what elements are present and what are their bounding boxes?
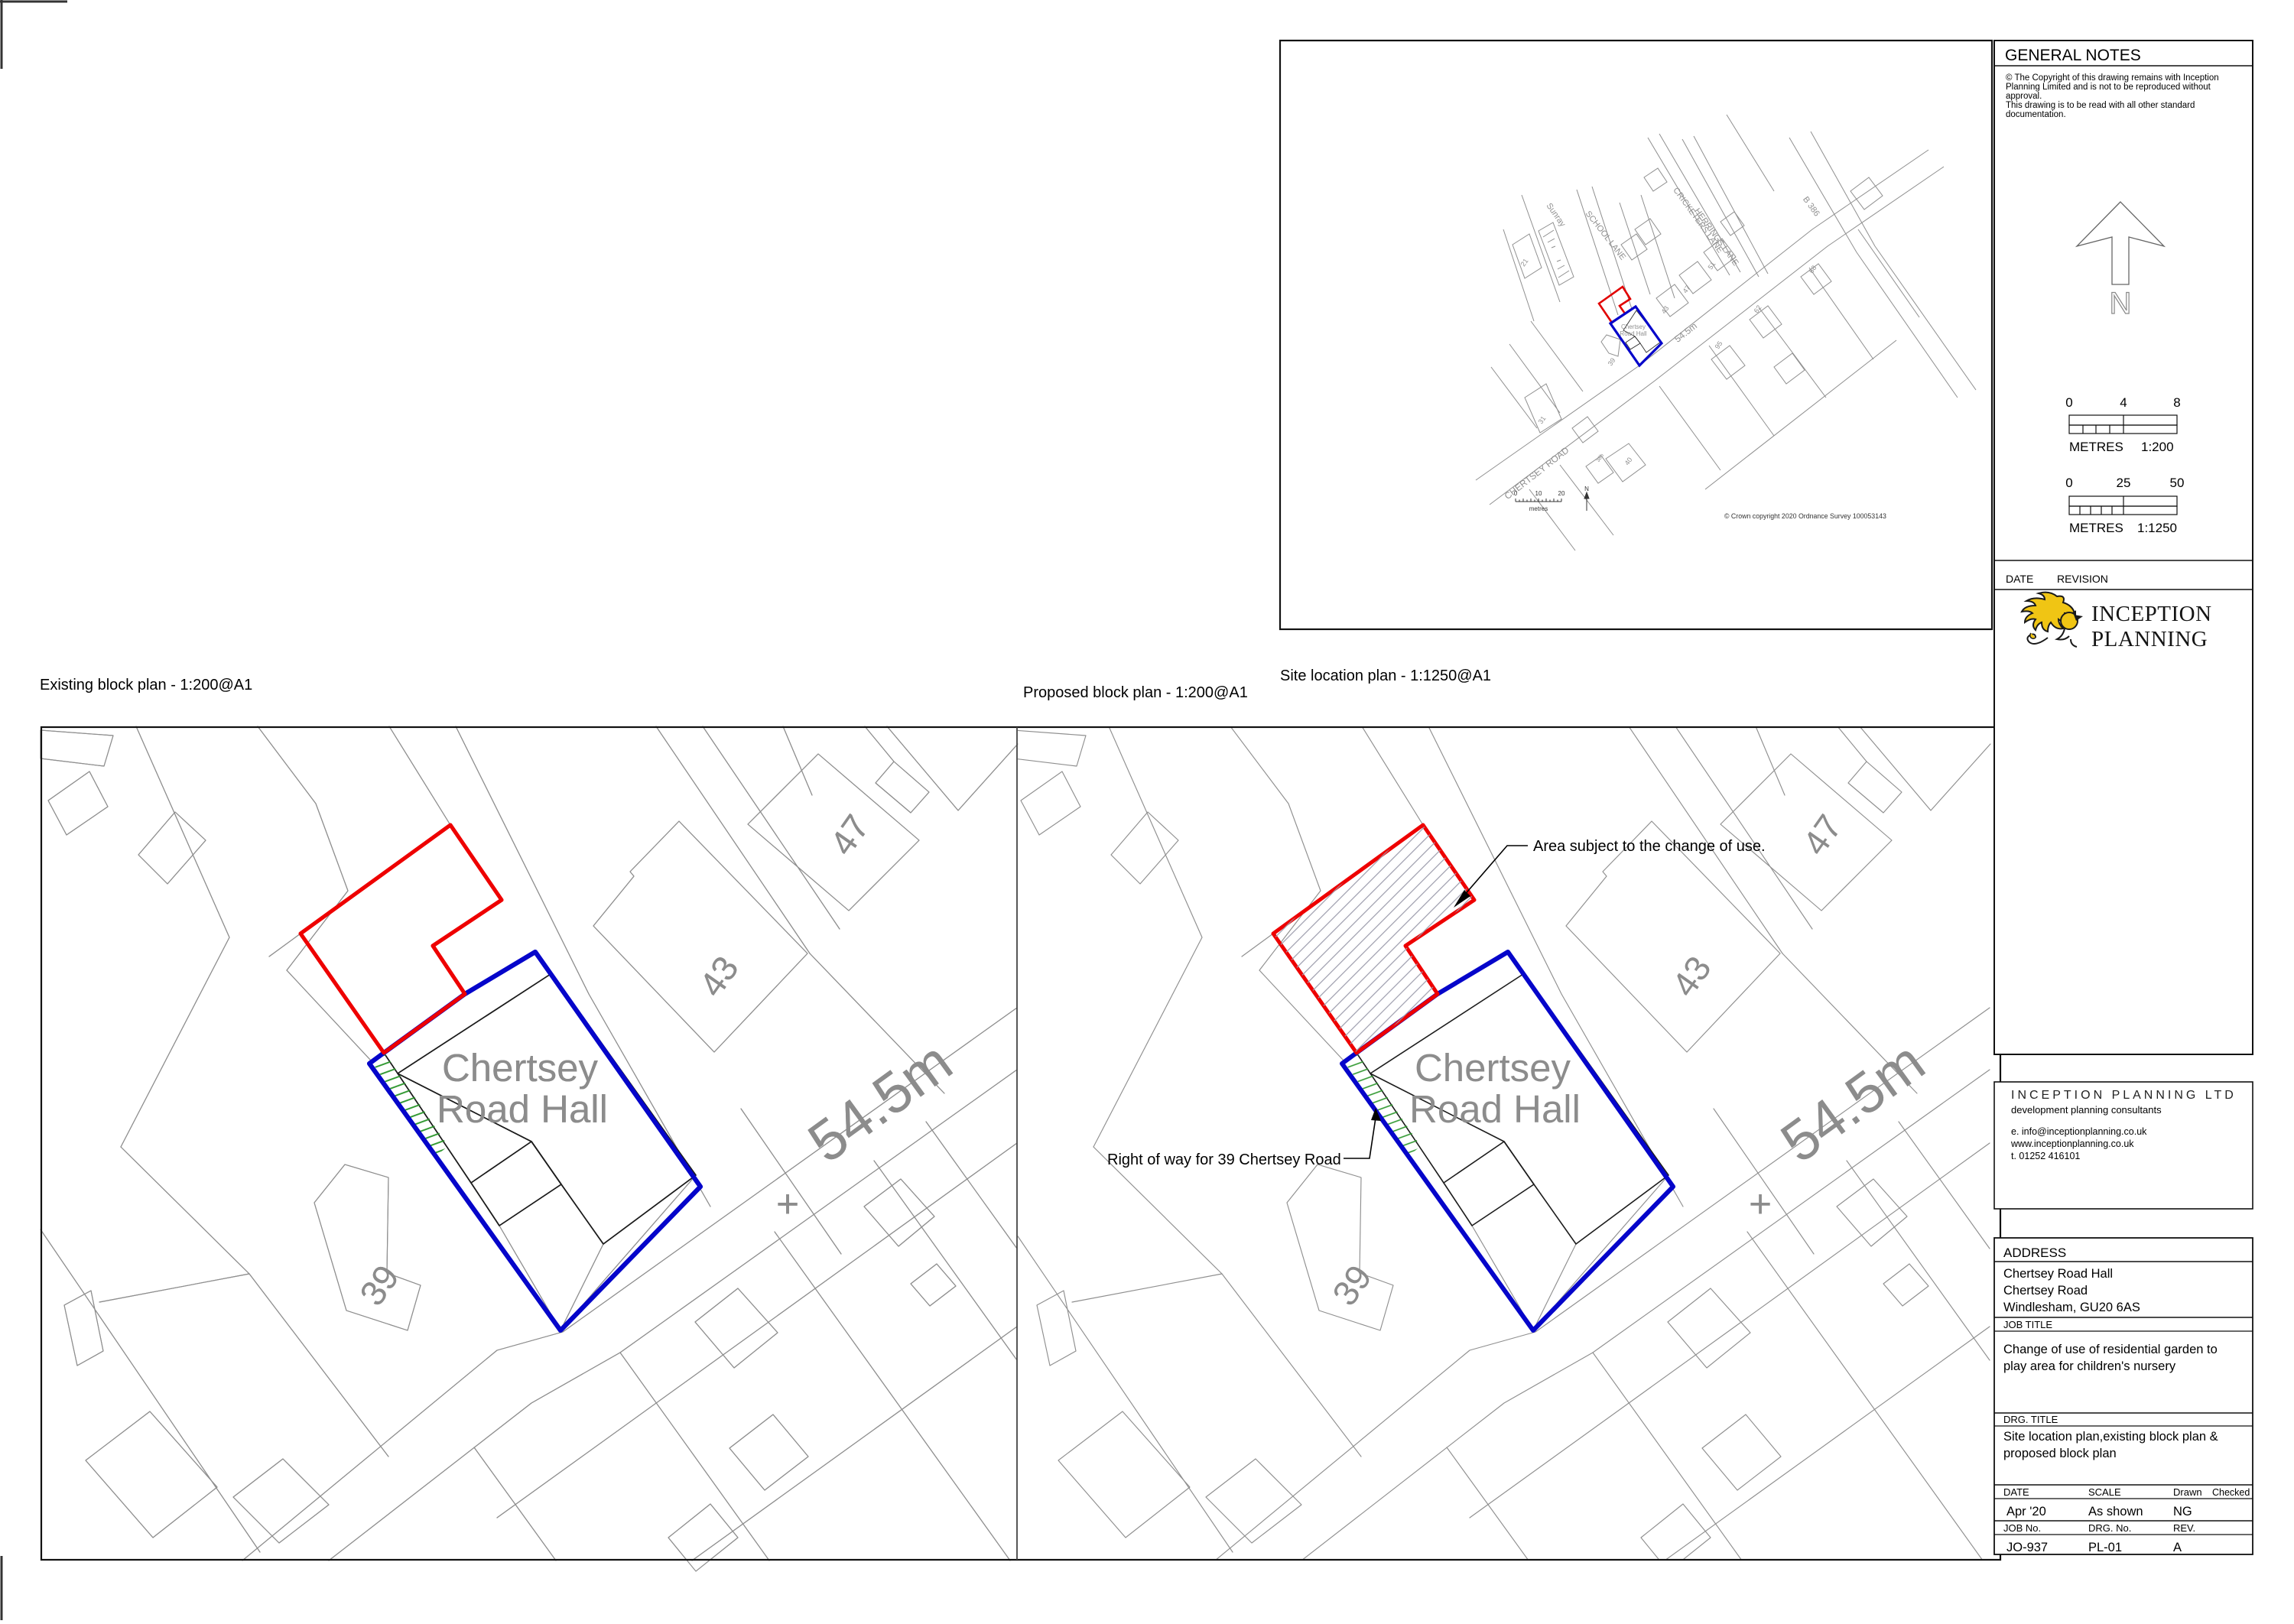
svg-text:ADDRESS: ADDRESS	[2003, 1246, 2066, 1260]
svg-text:Chertsey: Chertsey	[1621, 323, 1646, 330]
svg-text:NG: NG	[2173, 1505, 2192, 1518]
svg-text:Site location plan - 1:1250@A1: Site location plan - 1:1250@A1	[1280, 667, 1491, 684]
svg-text:JO-937: JO-937	[2006, 1541, 2048, 1554]
svg-text:0: 0	[2065, 476, 2072, 490]
svg-text:Apr '20: Apr '20	[2006, 1505, 2046, 1518]
svg-text:DATE: DATE	[2006, 573, 2033, 585]
svg-text:proposed block plan: proposed block plan	[2003, 1447, 2117, 1460]
svg-text:Windlesham, GU20 6AS: Windlesham, GU20 6AS	[2003, 1301, 2140, 1314]
svg-text:www.inceptionplanning.co.uk: www.inceptionplanning.co.uk	[2010, 1138, 2134, 1149]
svg-text:INCEPTION PLANNING LTD: INCEPTION PLANNING LTD	[2011, 1089, 2237, 1102]
svg-text:Planning Limited and is not to: Planning Limited and is not to be reprod…	[2006, 83, 2211, 92]
svg-text:t. 01252 416101: t. 01252 416101	[2011, 1151, 2080, 1161]
svg-text:8: 8	[2173, 395, 2180, 410]
svg-text:Proposed block plan - 1:200@A1: Proposed block plan - 1:200@A1	[1023, 684, 1248, 701]
svg-text:N: N	[1584, 486, 1589, 492]
svg-text:As shown: As shown	[2088, 1505, 2143, 1518]
svg-text:Change of use of residential g: Change of use of residential garden to	[2003, 1343, 2218, 1356]
svg-text:metres: metres	[1529, 505, 1548, 512]
svg-text:10: 10	[1535, 490, 1542, 497]
svg-text:Chertsey Road Hall: Chertsey Road Hall	[2003, 1267, 2113, 1281]
svg-text:Road Hall: Road Hall	[1620, 330, 1646, 337]
svg-text:PL-01: PL-01	[2088, 1541, 2122, 1554]
svg-text:e. info@inceptionplanning.co.u: e. info@inceptionplanning.co.uk	[2011, 1126, 2147, 1137]
svg-text:documentation.: documentation.	[2006, 110, 2066, 119]
svg-text:Site location plan,existing bl: Site location plan,existing block plan &	[2003, 1430, 2218, 1444]
svg-text:PLANNING: PLANNING	[2091, 627, 2208, 651]
svg-text:50: 50	[2170, 476, 2185, 490]
svg-text:JOB No.: JOB No.	[2003, 1522, 2041, 1534]
svg-text:play area for children's nurse: play area for children's nursery	[2003, 1359, 2176, 1373]
svg-text:METRES: METRES	[2069, 521, 2123, 535]
svg-text:INCEPTION: INCEPTION	[2091, 602, 2212, 626]
svg-text:4: 4	[2120, 395, 2127, 410]
svg-text:DRG. No.: DRG. No.	[2088, 1522, 2131, 1534]
svg-text:approval.: approval.	[2006, 92, 2042, 101]
svg-text:A: A	[2173, 1541, 2182, 1554]
svg-text:development planning consultan: development planning consultants	[2011, 1104, 2162, 1116]
svg-text:© The Copyright of this drawin: © The Copyright of this drawing remains …	[2006, 73, 2219, 83]
svg-text:DATE: DATE	[2003, 1486, 2029, 1498]
svg-text:Existing block plan - 1:200@A1: Existing block plan - 1:200@A1	[40, 677, 252, 693]
svg-text:Area subject to the change of: Area subject to the change of use.	[1533, 838, 1766, 855]
svg-text:SCALE: SCALE	[2088, 1486, 2121, 1498]
svg-text:Drawn: Drawn	[2173, 1486, 2202, 1498]
svg-text:GENERAL NOTES: GENERAL NOTES	[2005, 47, 2141, 64]
svg-text:0: 0	[2065, 395, 2072, 410]
svg-text:Chertsey Road: Chertsey Road	[2003, 1284, 2088, 1298]
svg-text:JOB TITLE: JOB TITLE	[2003, 1319, 2052, 1330]
svg-text:Checked: Checked	[2212, 1487, 2250, 1498]
svg-text:REV.: REV.	[2173, 1522, 2195, 1534]
svg-text:DRG. TITLE: DRG. TITLE	[2003, 1414, 2058, 1425]
svg-text:1:1250: 1:1250	[2137, 521, 2177, 535]
svg-text:© Crown copyright 2020 Ordnanc: © Crown copyright 2020 Ordnance Survey 1…	[1724, 512, 1886, 520]
svg-text:Right of way for 39 Chertsey R: Right of way for 39 Chertsey Road	[1107, 1151, 1341, 1168]
svg-text:1:200: 1:200	[2141, 440, 2174, 454]
svg-text:This drawing is to be read wit: This drawing is to be read with all othe…	[2006, 101, 2195, 110]
svg-text:METRES: METRES	[2069, 440, 2123, 454]
svg-text:N: N	[2110, 287, 2132, 320]
svg-text:20: 20	[1558, 490, 1565, 497]
svg-text:REVISION: REVISION	[2057, 573, 2108, 585]
svg-text:25: 25	[2117, 476, 2131, 490]
svg-text:0: 0	[1514, 490, 1518, 497]
